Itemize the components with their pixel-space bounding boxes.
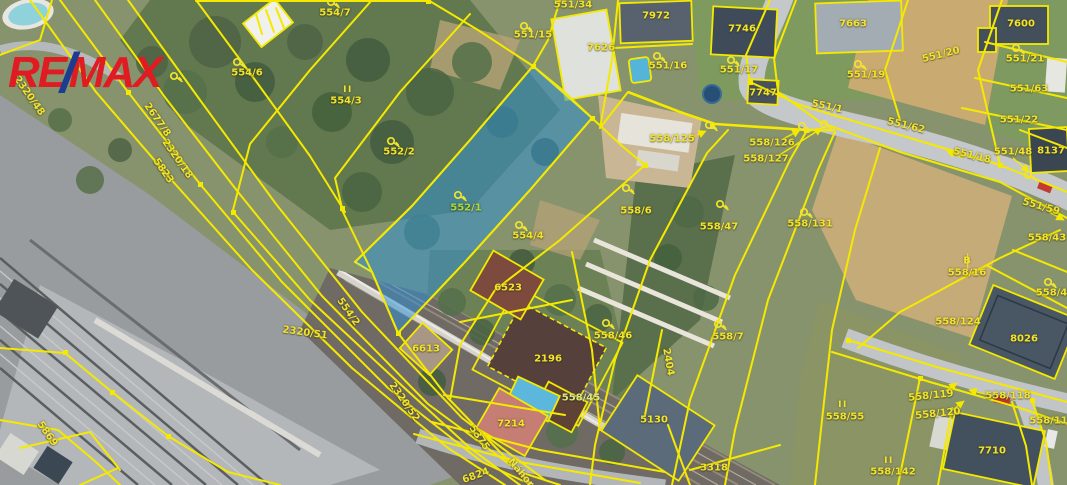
parcel-number-label: 558/142 xyxy=(870,467,915,478)
parcel-number-label: 558/55 xyxy=(826,412,864,423)
cadastre-key-symbol xyxy=(797,121,813,134)
parcel-number-label: 558/118 xyxy=(985,391,1030,402)
building-number-label: 7214 xyxy=(497,419,525,430)
building-number-label: 7663 xyxy=(839,19,867,30)
cadastre-key-symbol xyxy=(621,183,637,196)
cadastre-key-symbol xyxy=(326,0,342,10)
parcel-number-label: 3318 xyxy=(700,463,728,474)
cadastre-key-symbol xyxy=(1023,170,1039,183)
building-number-label: 7972 xyxy=(642,11,670,22)
cadastre-key-symbol xyxy=(169,71,185,84)
parcel-number-label: 558/47 xyxy=(700,222,738,233)
building-number-label: 5130 xyxy=(640,415,668,426)
cadastre-bars-symbol: II xyxy=(838,400,848,410)
parcel-number-label: 558/124 xyxy=(935,317,980,328)
cadastre-key-symbol xyxy=(853,59,869,72)
logo-re: RE xyxy=(8,51,65,95)
cadastre-key-symbol xyxy=(715,199,731,212)
parcel-number-label: 554/3 xyxy=(330,96,361,107)
parcel-number-label: 558/127 xyxy=(743,154,788,165)
parcel-number-label: 551/63 xyxy=(1010,84,1048,95)
cadastre-b-symbol: B xyxy=(963,256,971,267)
cadastre-key-symbol xyxy=(713,319,729,332)
cadastre-key-symbol xyxy=(1011,43,1027,56)
logo-max: MAX xyxy=(69,51,161,95)
cadastre-key-symbol xyxy=(799,207,815,220)
building-number-label: 7600 xyxy=(1007,19,1035,30)
building-number-label: 8137 xyxy=(1037,146,1065,157)
cadastre-bars-symbol: II xyxy=(884,456,894,466)
cadastre-key-symbol xyxy=(514,220,530,233)
cadastre-key-symbol xyxy=(232,57,248,70)
remax-logo: RE / MAX xyxy=(8,40,160,96)
cadastre-key-symbol xyxy=(704,120,720,133)
cadastre-key-symbol xyxy=(1043,277,1059,290)
cadastre-key-symbol xyxy=(519,21,535,34)
cadastre-bars-symbol: II xyxy=(343,85,353,95)
highlighted-parcel-label: 552/1 xyxy=(450,203,481,214)
parcel-number-label: 558/16 xyxy=(948,268,986,279)
parcel-number-label: 551/34 xyxy=(554,0,592,11)
building-number-label: 7710 xyxy=(978,446,1006,457)
building-number-label: 7746 xyxy=(728,24,756,35)
building-number-label: 6613 xyxy=(412,344,440,355)
building-number-label: 8026 xyxy=(1010,334,1038,345)
building-number-label: 6523 xyxy=(494,283,522,294)
parcel-number-label: 558/125 xyxy=(649,134,694,145)
parcel-number-label: 558/126 xyxy=(749,138,794,149)
logo-slash: / xyxy=(60,45,74,101)
parcel-number-label: 558/7 xyxy=(712,332,743,343)
parcel-number-label: 558/45 xyxy=(562,393,600,404)
parcel-number-label: 551/48 xyxy=(994,147,1032,158)
parcel-number-label: 551/22 xyxy=(1000,115,1038,126)
cadastre-key-symbol xyxy=(652,51,668,64)
parcel-number-label: 558/117 xyxy=(1029,416,1067,427)
cadastre-key-symbol xyxy=(601,318,617,331)
cadastre-key-symbol xyxy=(726,55,742,68)
map-canvas: 554/7554/6554/3552/2552/1554/4554/2551/3… xyxy=(0,0,1067,485)
cadastre-key-symbol xyxy=(386,136,402,149)
cadastre-key-symbol xyxy=(819,119,835,132)
building-number-label: 7747 xyxy=(749,88,777,99)
cadastre-key-symbol xyxy=(453,190,469,203)
building-number-label: 2196 xyxy=(534,354,562,365)
parcel-number-label: 558/46 xyxy=(594,331,632,342)
parcel-number-label: 558/6 xyxy=(620,206,651,217)
parcel-number-label: 558/43 xyxy=(1028,233,1066,244)
parcel-number-label: 558/131 xyxy=(787,219,832,230)
building-number-label: 7626 xyxy=(587,43,615,54)
